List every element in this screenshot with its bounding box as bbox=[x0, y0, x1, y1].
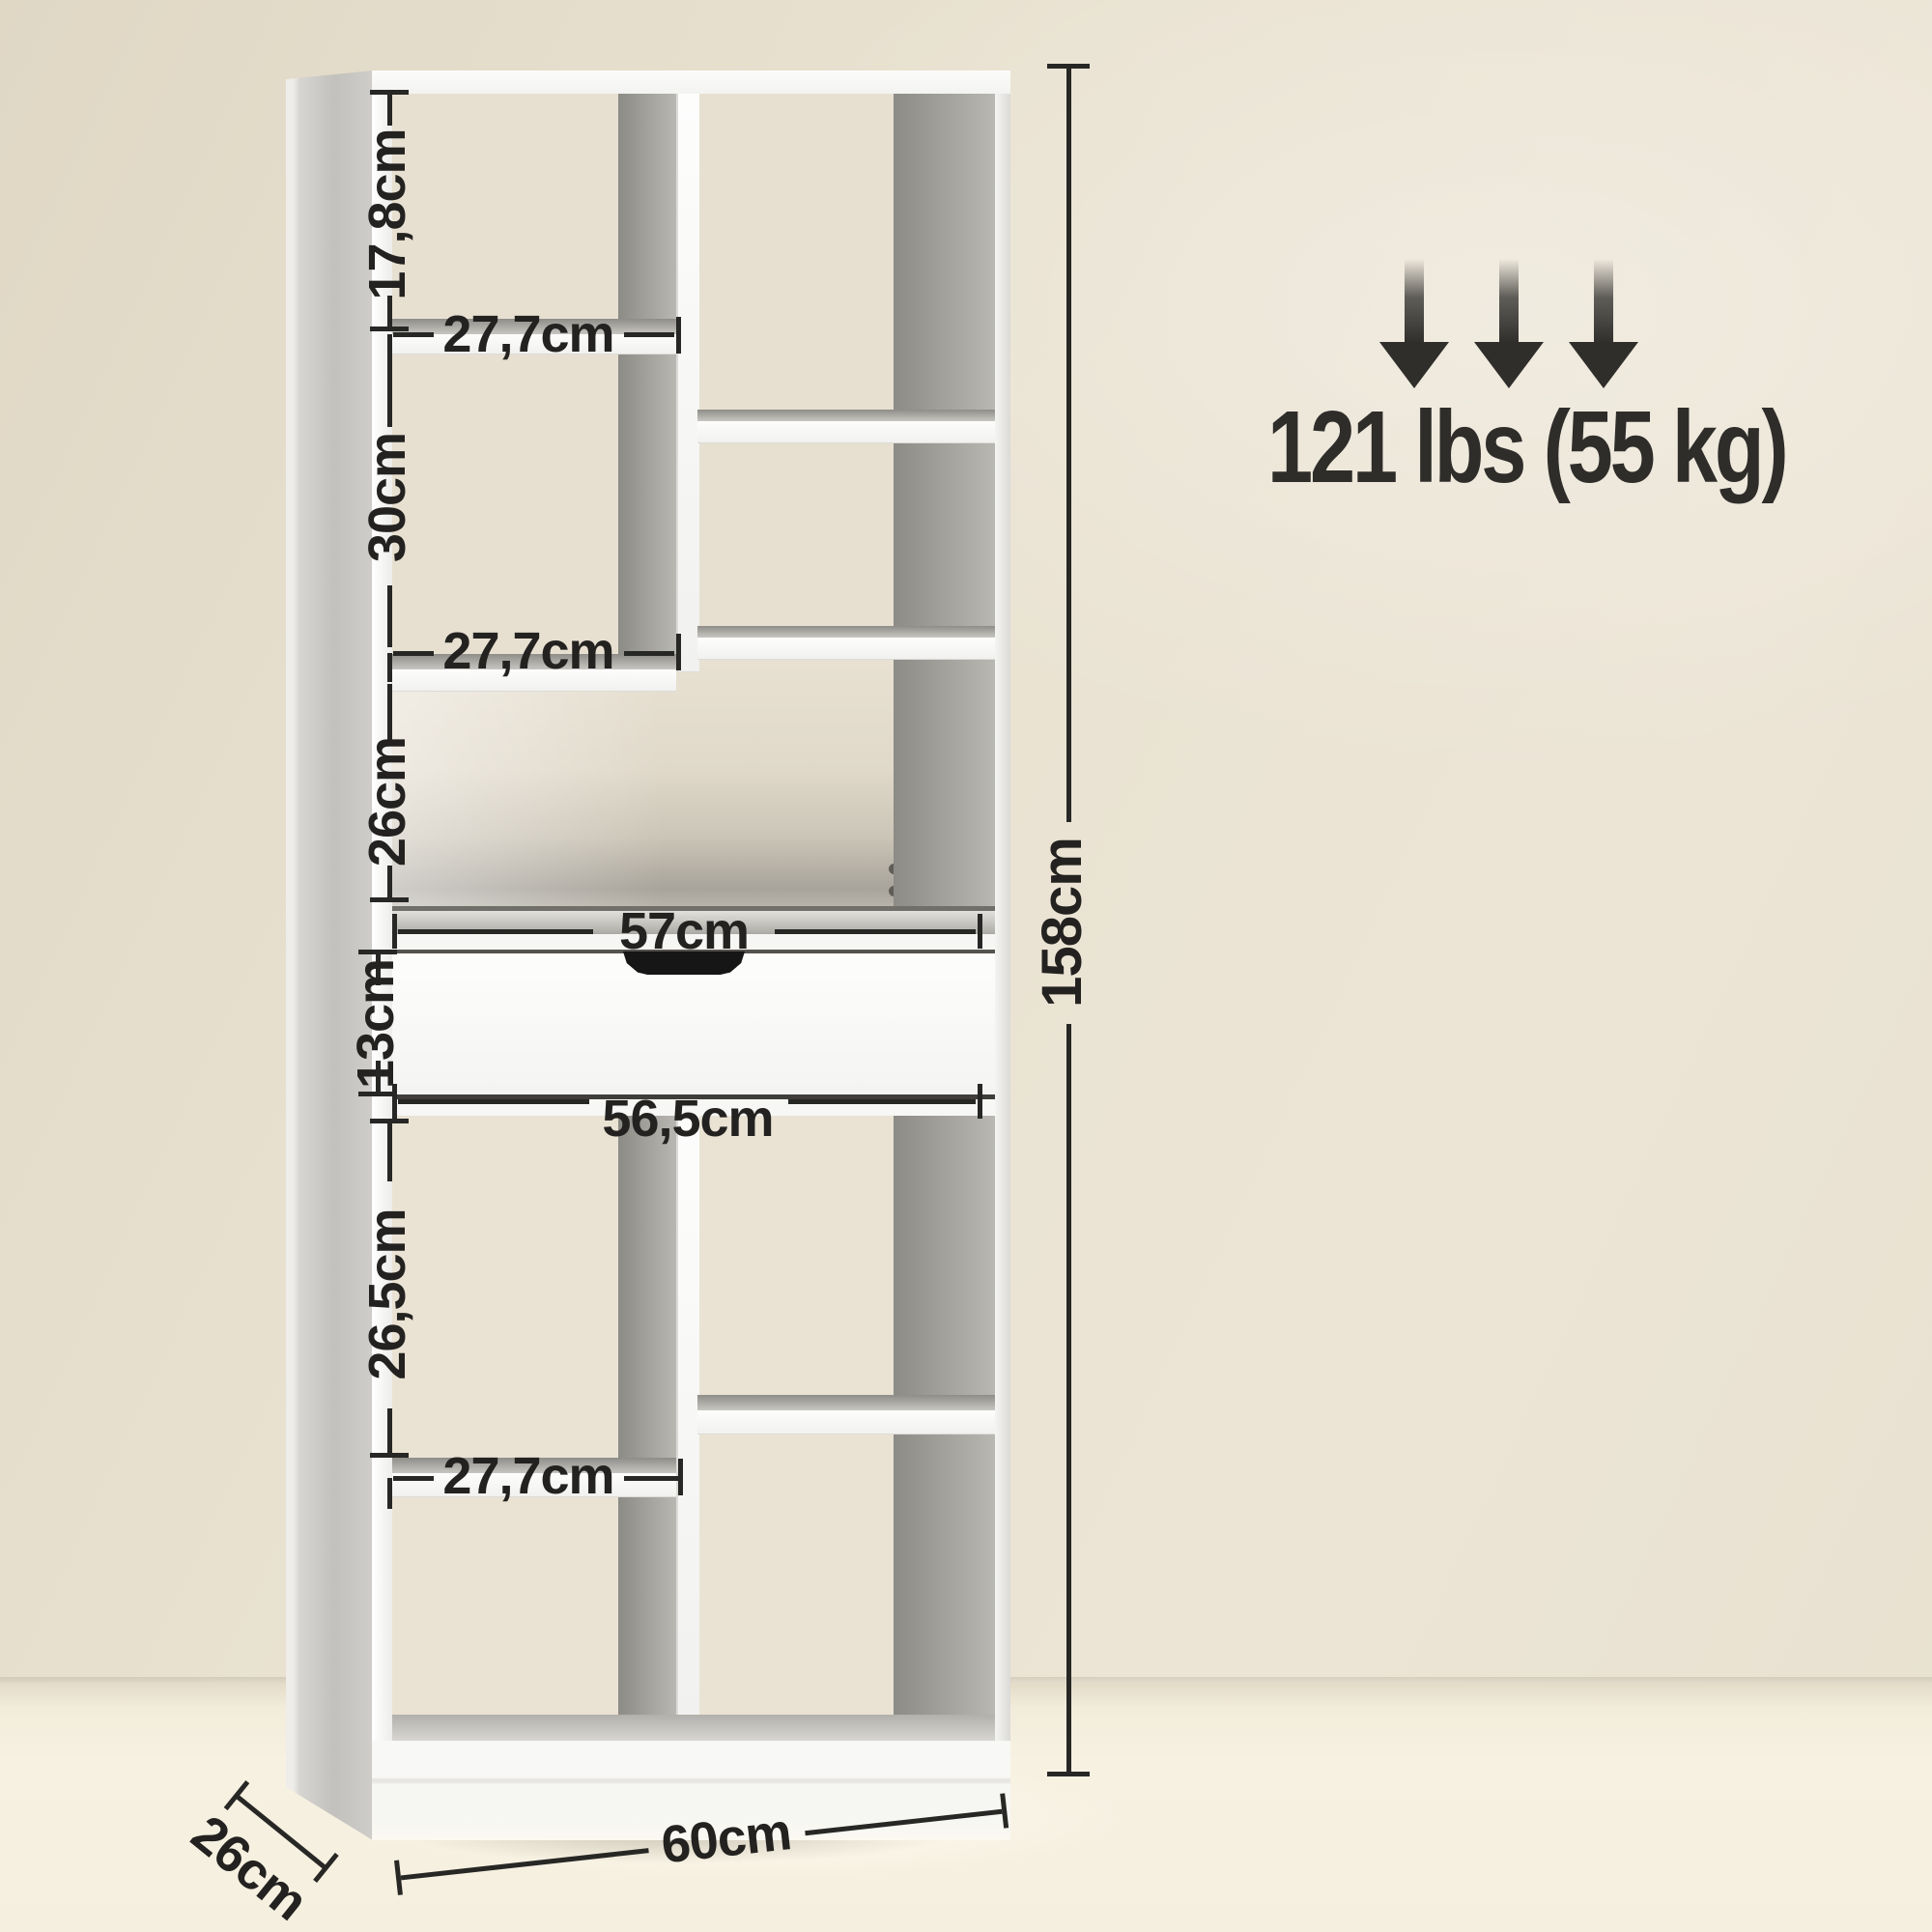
dim-line bbox=[1066, 69, 1071, 822]
cabinet-right-shelf bbox=[697, 1410, 995, 1435]
weight-capacity-callout: 121 lbs (55 kg) bbox=[1140, 384, 1913, 510]
dim-tick bbox=[387, 653, 392, 682]
dim-tick bbox=[358, 1092, 397, 1096]
shelf-top-surface bbox=[697, 626, 995, 638]
down-arrow-icon bbox=[1474, 259, 1544, 388]
dim-label-middle-shelf-width: 27,7cm bbox=[437, 626, 620, 676]
dim-line bbox=[387, 585, 392, 647]
dim-tick bbox=[678, 1459, 683, 1495]
right-stile bbox=[995, 94, 1010, 1741]
dim-tick bbox=[676, 634, 681, 670]
dim-tick bbox=[370, 1453, 409, 1458]
dim-line bbox=[393, 1476, 434, 1481]
dim-line bbox=[398, 929, 593, 934]
arrow-shaft bbox=[1405, 259, 1424, 344]
dim-line bbox=[376, 1061, 381, 1092]
arrow-head bbox=[1569, 342, 1638, 388]
dim-tick bbox=[370, 327, 409, 331]
shelf-top-surface bbox=[697, 410, 995, 421]
dim-tick bbox=[392, 914, 397, 949]
dim-label-top-cell-height: 17,8cm bbox=[362, 118, 420, 311]
hutch-right-column-shadow bbox=[894, 94, 995, 906]
dim-line bbox=[1066, 1024, 1071, 1774]
dim-line bbox=[624, 651, 674, 656]
dim-tick bbox=[370, 897, 409, 902]
dim-tick bbox=[978, 1084, 982, 1119]
dim-label-upper-shelf-width: 27,7cm bbox=[437, 309, 620, 359]
hutch-right-shelf-1 bbox=[697, 421, 995, 443]
weight-capacity-label: 121 lbs (55 kg) bbox=[1267, 389, 1785, 506]
dim-tick bbox=[392, 1084, 397, 1119]
dim-line bbox=[624, 332, 674, 337]
dim-line bbox=[387, 296, 392, 328]
dim-line bbox=[387, 866, 392, 898]
arrow-shaft bbox=[1594, 259, 1613, 344]
dim-tick bbox=[1047, 1772, 1090, 1776]
dim-line bbox=[387, 340, 392, 427]
down-arrow-icon bbox=[1379, 259, 1449, 388]
top-board bbox=[372, 71, 1010, 96]
product-dimension-image: 17,8cm 27,7cm 30cm 27,7cm 26cm 57cm 13cm… bbox=[0, 0, 1932, 1932]
dim-label-overall-height: 158cm bbox=[1037, 816, 1099, 1029]
dim-line bbox=[788, 1099, 976, 1104]
dim-tick bbox=[978, 914, 982, 949]
dim-line bbox=[398, 1099, 589, 1104]
dim-label-open-compartment-height: 26cm bbox=[362, 724, 420, 879]
dim-label-drawer-width: 56,5cm bbox=[591, 1094, 784, 1144]
cabinet-left-column-shadow bbox=[618, 1116, 676, 1715]
dim-line bbox=[393, 651, 434, 656]
dim-label-lower-shelf-width: 27,7cm bbox=[437, 1451, 620, 1501]
dim-line bbox=[387, 1408, 392, 1453]
hutch-left-column-shadow bbox=[618, 94, 676, 654]
cabinet-floor bbox=[392, 1715, 995, 1741]
dim-line bbox=[393, 332, 434, 337]
dim-label-middle-cell-height: 30cm bbox=[362, 415, 420, 580]
hutch-center-divider bbox=[676, 94, 699, 672]
arrow-head bbox=[1379, 342, 1449, 388]
dim-line bbox=[624, 1476, 678, 1481]
arrow-head bbox=[1474, 342, 1544, 388]
hutch-right-shelf-2 bbox=[697, 638, 995, 660]
down-arrow-icon bbox=[1569, 259, 1638, 388]
dim-tick bbox=[676, 317, 681, 354]
dim-line bbox=[387, 1123, 392, 1181]
dim-tick bbox=[387, 1478, 392, 1509]
arrow-shaft bbox=[1499, 259, 1519, 344]
bookcase bbox=[0, 0, 1932, 1932]
dim-label-counter-width: 57cm bbox=[597, 906, 771, 956]
cabinet-center-divider bbox=[676, 1116, 699, 1716]
dim-label-lower-cell-height: 26,5cm bbox=[362, 1183, 420, 1406]
dim-line bbox=[775, 929, 976, 934]
shelf-top-surface bbox=[697, 1395, 995, 1410]
